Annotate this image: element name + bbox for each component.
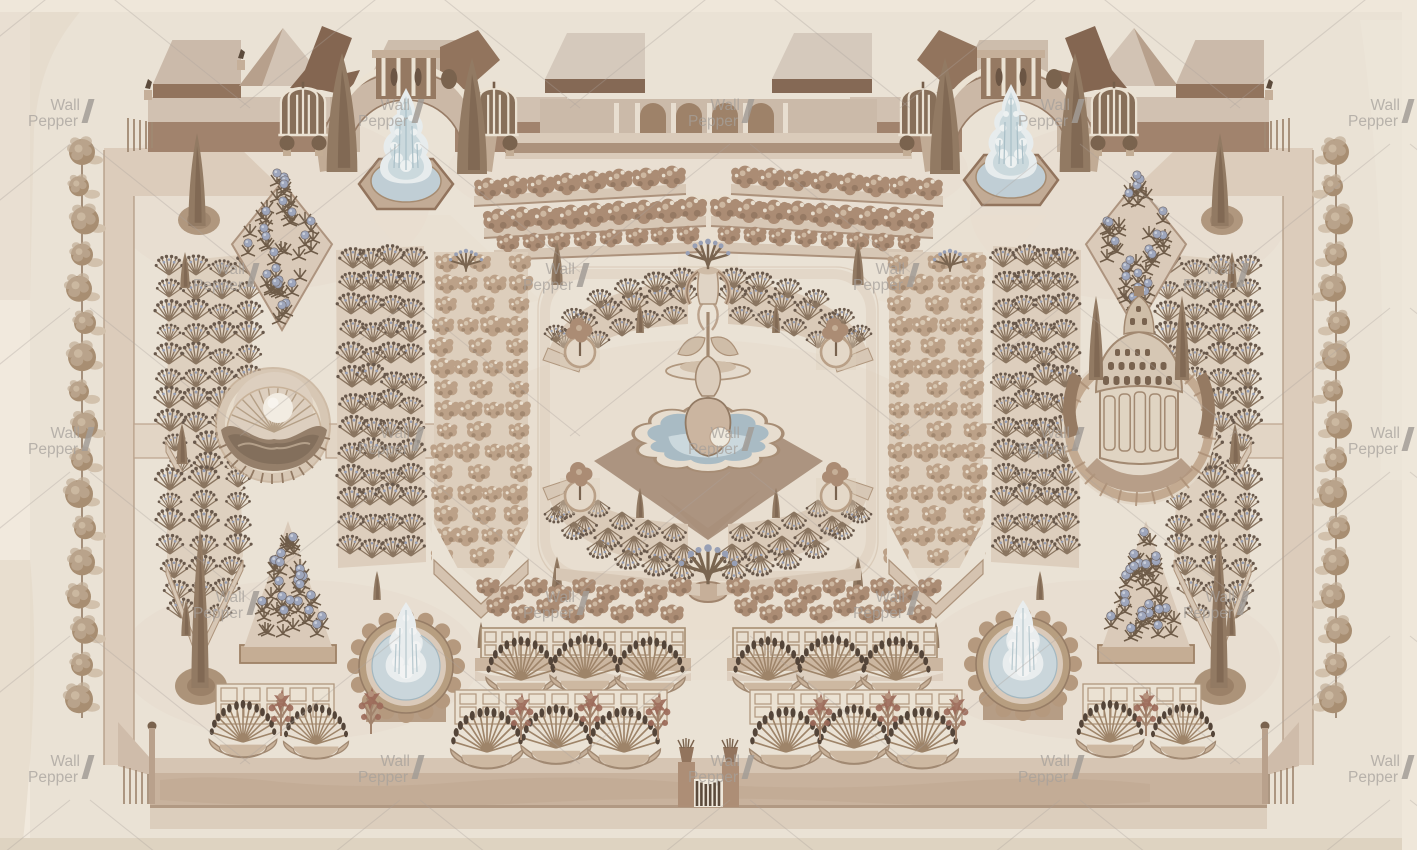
- svg-text:Wall: Wall: [875, 261, 905, 278]
- svg-text:Pepper: Pepper: [1018, 769, 1068, 786]
- svg-text:Wall: Wall: [1040, 97, 1070, 114]
- svg-text:Wall: Wall: [545, 261, 575, 278]
- svg-text:Wall: Wall: [1040, 425, 1070, 442]
- svg-text:Pepper: Pepper: [523, 277, 573, 294]
- svg-text:Pepper: Pepper: [193, 605, 243, 622]
- svg-text:Wall: Wall: [215, 261, 245, 278]
- svg-text:Pepper: Pepper: [1348, 113, 1398, 130]
- svg-text:Wall: Wall: [710, 753, 740, 770]
- svg-text:Wall: Wall: [50, 425, 80, 442]
- svg-text:Pepper: Pepper: [358, 441, 408, 458]
- svg-text:Pepper: Pepper: [1018, 113, 1068, 130]
- svg-text:Wall: Wall: [1370, 425, 1400, 442]
- svg-text:Pepper: Pepper: [688, 441, 738, 458]
- svg-text:Wall: Wall: [545, 589, 575, 606]
- svg-text:Pepper: Pepper: [853, 605, 903, 622]
- svg-text:Wall: Wall: [1370, 97, 1400, 114]
- svg-text:Pepper: Pepper: [523, 605, 573, 622]
- svg-text:Pepper: Pepper: [1183, 277, 1233, 294]
- svg-text:Wall: Wall: [1205, 261, 1235, 278]
- svg-text:Wall: Wall: [50, 753, 80, 770]
- svg-text:Wall: Wall: [380, 425, 410, 442]
- svg-text:Pepper: Pepper: [688, 113, 738, 130]
- svg-text:Wall: Wall: [1040, 753, 1070, 770]
- svg-text:Pepper: Pepper: [1348, 769, 1398, 786]
- svg-text:Pepper: Pepper: [853, 277, 903, 294]
- svg-text:Pepper: Pepper: [193, 277, 243, 294]
- svg-text:Wall: Wall: [710, 97, 740, 114]
- svg-text:Wall: Wall: [875, 589, 905, 606]
- svg-text:Wall: Wall: [380, 97, 410, 114]
- svg-text:Pepper: Pepper: [1018, 441, 1068, 458]
- svg-text:Pepper: Pepper: [28, 441, 78, 458]
- svg-text:Pepper: Pepper: [358, 769, 408, 786]
- svg-text:Wall: Wall: [215, 589, 245, 606]
- svg-text:Wall: Wall: [380, 753, 410, 770]
- svg-text:Wall: Wall: [50, 97, 80, 114]
- svg-text:Pepper: Pepper: [28, 113, 78, 130]
- svg-text:Pepper: Pepper: [1183, 605, 1233, 622]
- svg-text:Pepper: Pepper: [1348, 441, 1398, 458]
- svg-text:Wall: Wall: [1370, 753, 1400, 770]
- svg-text:Pepper: Pepper: [28, 769, 78, 786]
- svg-text:Pepper: Pepper: [358, 113, 408, 130]
- svg-text:Wall: Wall: [710, 425, 740, 442]
- svg-text:Pepper: Pepper: [688, 769, 738, 786]
- svg-text:Wall: Wall: [1205, 589, 1235, 606]
